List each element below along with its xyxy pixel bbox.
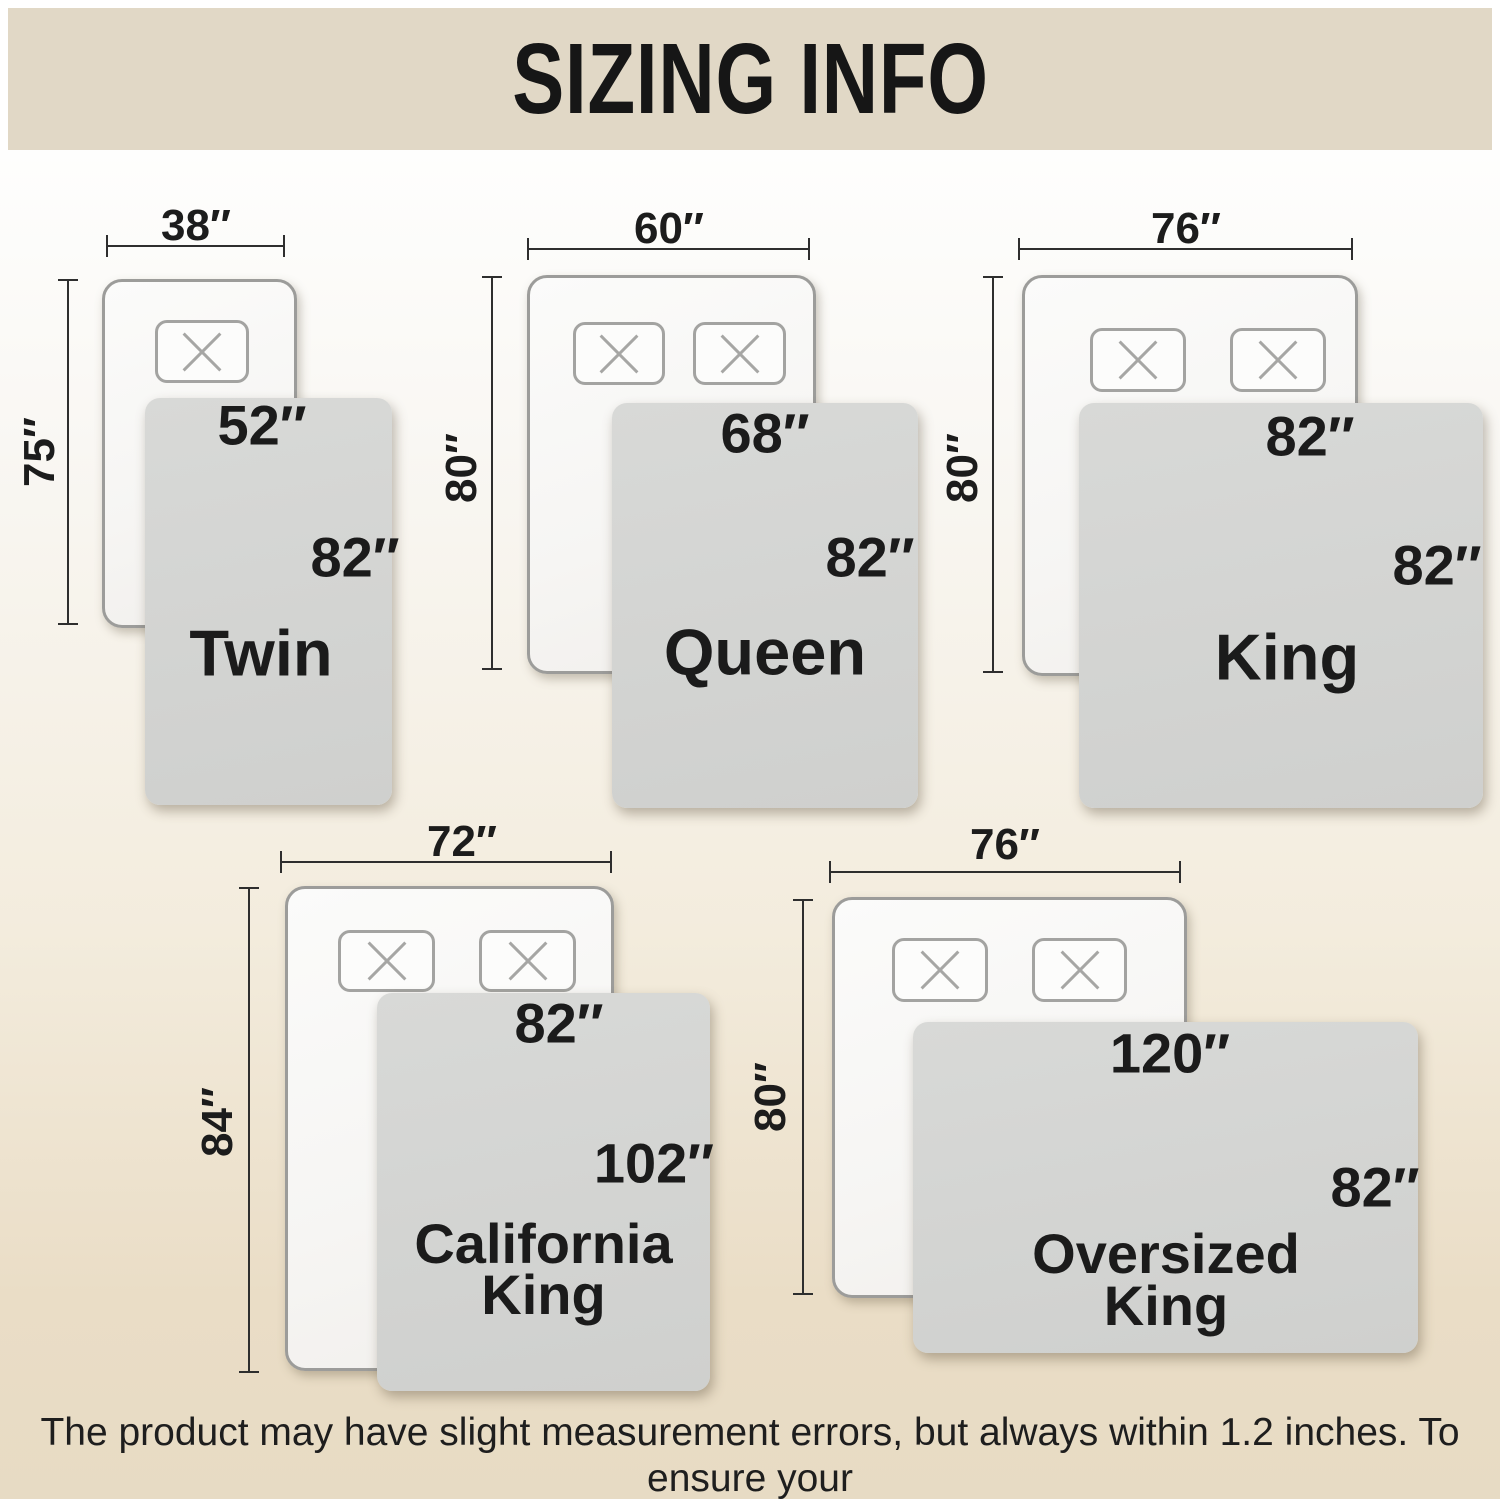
size-name-label: California King (377, 1218, 710, 1320)
bed-width-label: 76″ (1151, 204, 1221, 254)
pillow-x-icon (696, 325, 783, 382)
pillow (892, 938, 988, 1002)
blanket-length-label: 82″ (825, 525, 914, 590)
pillow-x-icon (341, 933, 432, 989)
pillow (573, 322, 665, 385)
blanket-width-label: 82″ (1265, 404, 1354, 469)
size-name-label: Twin (189, 616, 332, 691)
footer-note: The product may have slight measurement … (20, 1410, 1480, 1499)
bed-length-dimension-line (992, 276, 994, 673)
pillow-x-icon (1233, 331, 1323, 389)
pillow (338, 930, 435, 992)
bed-length-label: 80″ (938, 433, 988, 503)
pillow-x-icon (482, 933, 573, 989)
blanket-overlay: 82″ 82″ King (1079, 403, 1483, 808)
bed-length-label: 84″ (193, 1087, 243, 1157)
bed-length-dimension-line (802, 899, 804, 1295)
bed-width-dimension-line (829, 871, 1181, 873)
bed-width-label: 72″ (427, 817, 497, 867)
blanket-length-label: 82″ (1392, 533, 1481, 598)
footer-note-line-1: The product may have slight measurement … (20, 1410, 1480, 1499)
pillow-x-icon (576, 325, 662, 382)
blanket-width-label: 68″ (720, 401, 809, 466)
blanket-length-label: 82″ (310, 525, 399, 590)
pillow (1090, 328, 1186, 392)
blanket-width-label: 82″ (514, 991, 603, 1056)
blanket-length-label: 82″ (1330, 1155, 1419, 1220)
bed-length-dimension-line (491, 276, 493, 670)
pillow-x-icon (895, 941, 985, 999)
blanket-overlay: 68″ 82″ Queen (612, 403, 918, 808)
blanket-overlay: 120″ 82″ Oversized King (913, 1022, 1418, 1353)
page-title: SIZING INFO (512, 22, 989, 137)
bed-length-dimension-line (248, 887, 250, 1373)
pillow (1032, 938, 1127, 1002)
pillow-x-icon (1035, 941, 1124, 999)
size-name-label: King (1215, 620, 1359, 695)
pillow (1230, 328, 1326, 392)
bed-length-label: 80″ (746, 1062, 796, 1132)
size-name-label: Queen (664, 615, 866, 690)
pillow-x-icon (158, 323, 246, 380)
blanket-overlay: 52″ 82″ Twin (145, 398, 392, 805)
bed-width-label: 60″ (634, 204, 704, 254)
blanket-length-label: 102″ (594, 1131, 714, 1196)
header-banner: SIZING INFO (8, 8, 1492, 150)
blanket-width-label: 52″ (217, 393, 306, 458)
bed-length-label: 80″ (437, 433, 487, 503)
bed-width-label: 76″ (970, 820, 1040, 870)
pillow-x-icon (1093, 331, 1183, 389)
size-name-label: Oversized King (976, 1228, 1356, 1332)
bed-width-label: 38″ (161, 201, 231, 251)
bed-length-dimension-line (67, 279, 69, 625)
pillow (155, 320, 249, 383)
blanket-overlay: 82″ 102″ California King (377, 993, 710, 1391)
sizing-info-infographic: SIZING INFO 38″ 75″ 52″ 82″ Twin 60″ 80″ (0, 0, 1500, 1499)
bed-length-label: 75″ (15, 417, 65, 487)
blanket-width-label: 120″ (1110, 1021, 1230, 1086)
pillow (479, 930, 576, 992)
pillow (693, 322, 786, 385)
